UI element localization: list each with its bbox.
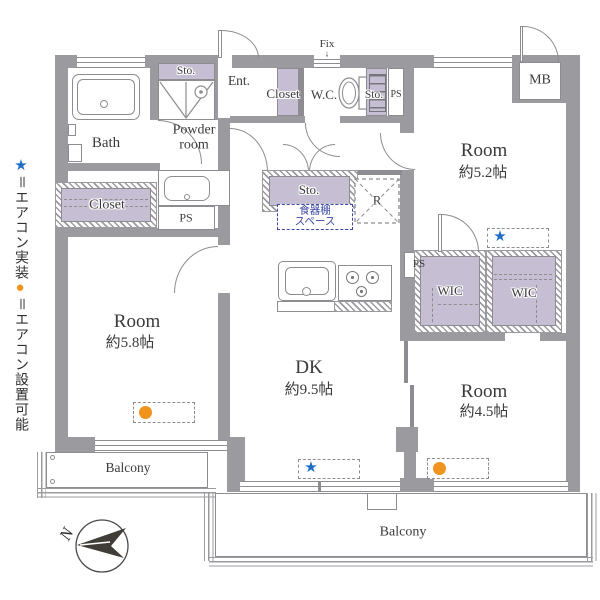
- bathtub-inner: [77, 79, 135, 115]
- cupboard-space-label: スペース: [295, 216, 336, 227]
- vanity-drain-icon: [184, 194, 190, 200]
- wic-door-arc: [441, 214, 479, 252]
- wic-pole-icon: [494, 274, 552, 275]
- closet-hall-label: Closet: [266, 87, 299, 101]
- wall: [230, 116, 305, 123]
- cupboard-space-label: 食器棚: [299, 205, 331, 216]
- wall: [568, 478, 580, 492]
- balcony-drain-icon: [50, 479, 55, 484]
- storage-door-arc: [309, 144, 335, 172]
- aircon-installed-star-icon: ★: [304, 461, 317, 477]
- wic-pole-icon: [494, 279, 552, 280]
- ps-hall-label: PS: [390, 90, 401, 101]
- balcony-bottom-label: Balcony: [380, 526, 427, 541]
- wall: [55, 437, 95, 452]
- balcony-railing: [209, 557, 593, 568]
- wic-pole-icon: [438, 304, 478, 305]
- window-mullion: [318, 481, 321, 492]
- ps-left-label: PS: [179, 212, 192, 225]
- wall: [299, 68, 304, 116]
- dk-name-label: DK: [295, 358, 322, 378]
- window: [77, 57, 145, 68]
- wall: [396, 427, 418, 452]
- stove-burner-icon: [346, 271, 359, 284]
- wall: [55, 163, 160, 171]
- balcony-step: [367, 493, 397, 510]
- compass-north-label: N: [55, 523, 78, 544]
- room52-size-label: 約5.2帖: [459, 166, 508, 182]
- aircon-possible-dot-icon: [433, 462, 446, 475]
- wic-right-label: WIC: [511, 286, 536, 300]
- kitchen-counter-hatch: [334, 301, 392, 312]
- bath-label: Bath: [92, 136, 120, 152]
- stove-burner-icon: [366, 271, 379, 284]
- wall: [400, 478, 434, 492]
- room45-name-label: Room: [461, 382, 507, 402]
- kitchen-drain-icon: [302, 287, 311, 296]
- wall-wic-bottom: [540, 333, 566, 341]
- balcony-railing: [37, 452, 46, 498]
- bathtub-drain-icon: [100, 100, 108, 108]
- sliding-door: [404, 341, 408, 383]
- wall: [358, 170, 402, 175]
- floorplan: ★ ★ Bath Powder room Sto. Closet PS Ent.…: [0, 0, 600, 600]
- powder-room-label: Powder room: [163, 123, 225, 152]
- balcony-railing: [204, 493, 215, 561]
- ps-right-label: PS: [413, 259, 425, 271]
- room52-name-label: Room: [461, 141, 507, 161]
- meter-box-label: MB: [529, 74, 551, 89]
- wall-right: [566, 55, 580, 492]
- dk-door-arc: [230, 128, 268, 172]
- wall-left: [55, 55, 68, 455]
- room52-door-arc: [380, 133, 415, 170]
- aircon-installed-star-icon: ★: [493, 230, 506, 246]
- compass: N: [52, 498, 144, 586]
- wall-wic-bottom: [400, 333, 505, 341]
- wall: [218, 293, 230, 440]
- storage-door-arc: [283, 144, 309, 172]
- balcony-drain-icon: [50, 455, 55, 460]
- window: [95, 440, 227, 451]
- aircon-legend: ★＝エアコン実装●＝エアコン設置可能: [10, 156, 30, 432]
- entrance-label: Ent.: [228, 74, 250, 88]
- wall: [404, 452, 416, 480]
- aircon-possible-dot-icon: [139, 406, 152, 419]
- balcony-railing: [587, 493, 597, 561]
- wall: [340, 55, 434, 68]
- storage-center-label: Sto.: [299, 183, 320, 197]
- wall: [340, 116, 408, 123]
- window: [434, 481, 568, 492]
- legend-dot-text: ＝エアコン設置可能: [13, 297, 28, 432]
- balcony-railing: [38, 488, 216, 498]
- legend-star-icon: ★: [12, 156, 28, 175]
- legend-dot-icon: ●: [12, 280, 28, 297]
- fix-arrow-icon: ↓: [325, 49, 330, 58]
- laundry-storage-label: Sto.: [177, 65, 195, 77]
- room45-size-label: 約4.5帖: [460, 405, 509, 421]
- legend-star-text: ＝エアコン実装: [13, 175, 28, 280]
- dk-size-label: 約9.5帖: [285, 383, 334, 399]
- wc-label: W.C.: [311, 88, 337, 102]
- entrance-door-arc: [221, 30, 259, 58]
- room58-name-label: Room: [114, 312, 160, 332]
- refrigerator-label: R: [373, 194, 381, 207]
- mb-door-arc: [523, 26, 559, 62]
- fix-window: [314, 59, 340, 68]
- sliding-door: [410, 385, 414, 427]
- wic-pole-icon: [432, 288, 433, 322]
- bath-counter-icon: [68, 144, 82, 162]
- washer-pan-lines-icon: [158, 80, 215, 120]
- stove-burner-icon: [356, 286, 367, 297]
- balcony-left-label: Balcony: [106, 461, 151, 475]
- bath-fixture-icon: [68, 124, 76, 136]
- window: [434, 57, 512, 68]
- toilet-icon: [338, 74, 368, 112]
- room58-size-label: 約5.8帖: [106, 336, 155, 352]
- closet-left-label: Closet: [89, 199, 125, 214]
- wall: [150, 68, 158, 120]
- storage-hall-label: Sto.: [365, 89, 383, 101]
- room58-door-arc: [174, 246, 218, 293]
- wall: [230, 478, 240, 492]
- wic-left-label: WIC: [437, 284, 462, 298]
